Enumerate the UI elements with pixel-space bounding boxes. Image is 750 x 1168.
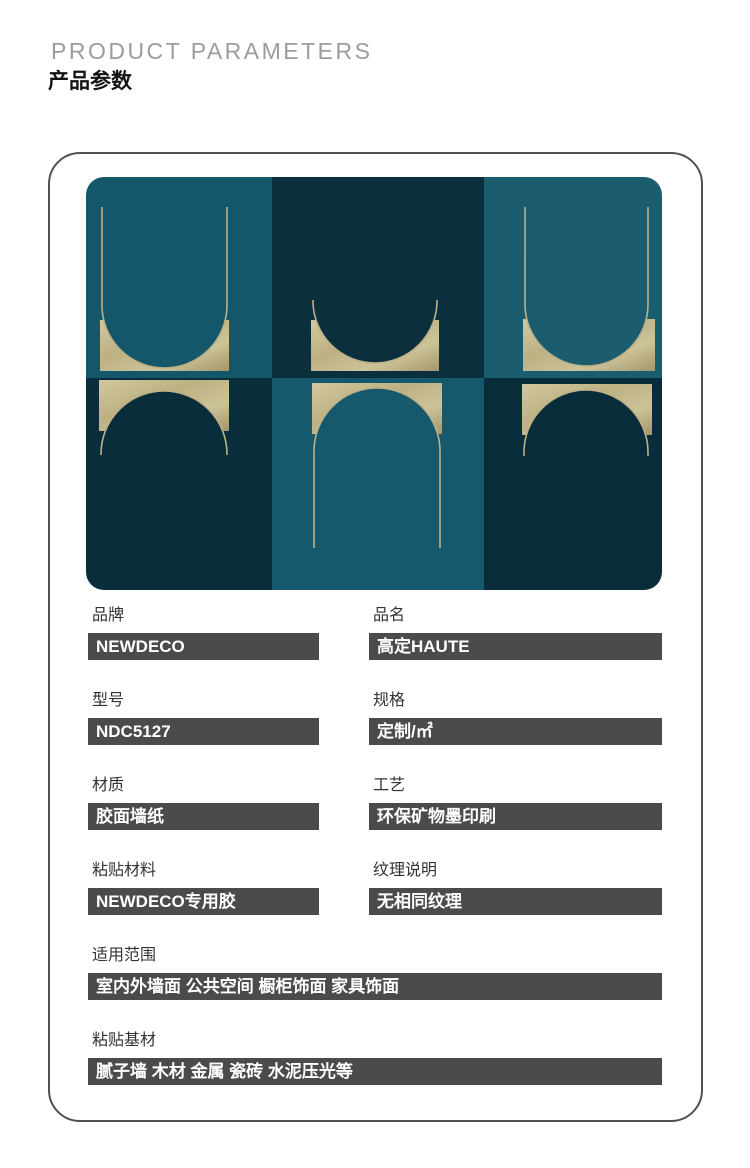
field-value: 室内外墙面 公共空间 橱柜饰面 家具饰面 [88, 973, 662, 1000]
field-label: 材质 [92, 776, 319, 796]
field-craft: 工艺 环保矿物墨印刷 [369, 776, 662, 830]
field-specification: 规格 定制/㎡ [369, 691, 662, 745]
field-product-name: 品名 高定HAUTE [369, 606, 662, 660]
field-value: NEWDECO专用胶 [88, 888, 319, 915]
field-texture-note: 纹理说明 无相同纹理 [369, 861, 662, 915]
field-value: 腻子墙 木材 金属 瓷砖 水泥压光等 [88, 1058, 662, 1085]
field-applicable-range: 适用范围 室内外墙面 公共空间 橱柜饰面 家具饰面 [88, 946, 662, 1000]
product-parameters-page: PRODUCT PARAMETERS 产品参数 [0, 0, 750, 1168]
field-label: 工艺 [373, 776, 662, 796]
page-title-en: PRODUCT PARAMETERS [51, 38, 372, 64]
field-label: 品牌 [92, 606, 319, 626]
page-title-zh: 产品参数 [48, 70, 132, 94]
field-label: 品名 [373, 606, 662, 626]
field-label: 粘贴基材 [92, 1031, 662, 1051]
field-substrate: 粘贴基材 腻子墙 木材 金属 瓷砖 水泥压光等 [88, 1031, 662, 1085]
field-value: 无相同纹理 [369, 888, 662, 915]
field-adhesive-material: 粘贴材料 NEWDECO专用胶 [88, 861, 319, 915]
field-value: 定制/㎡ [369, 718, 662, 745]
field-value: 环保矿物墨印刷 [369, 803, 662, 830]
u-arch-top-right [525, 207, 648, 366]
field-label: 纹理说明 [373, 861, 662, 881]
product-image [86, 177, 662, 590]
field-value: NEWDECO [88, 633, 319, 660]
field-label: 规格 [373, 691, 662, 711]
field-label: 粘贴材料 [92, 861, 319, 881]
field-value: 胶面墙纸 [88, 803, 319, 830]
field-brand: 品牌 NEWDECO [88, 606, 319, 660]
field-label: 型号 [92, 691, 319, 711]
field-value: 高定HAUTE [369, 633, 662, 660]
field-model: 型号 NDC5127 [88, 691, 319, 745]
field-label: 适用范围 [92, 946, 662, 966]
field-value: NDC5127 [88, 718, 319, 745]
dome-arch-bottom-mid [314, 388, 440, 548]
wallpaper-pattern [86, 177, 662, 590]
u-arch-top-left [102, 207, 227, 368]
field-material: 材质 胶面墙纸 [88, 776, 319, 830]
